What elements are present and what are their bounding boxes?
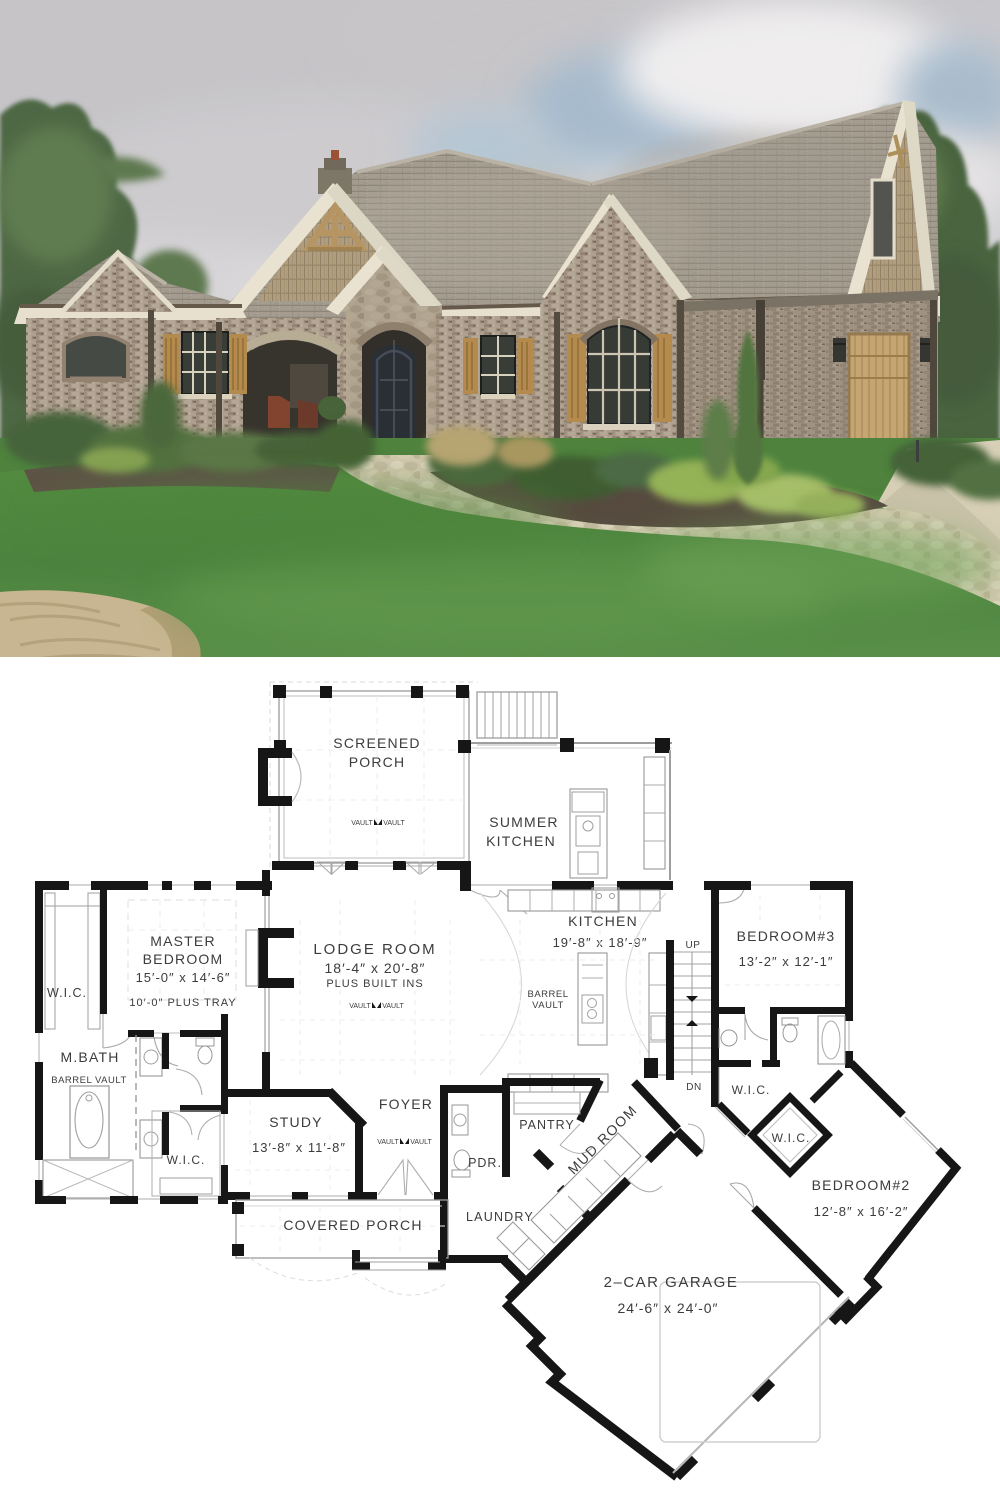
svg-text:VAULT: VAULT: [349, 1003, 371, 1010]
svg-text:13′-8″ x 11′-8″: 13′-8″ x 11′-8″: [252, 1140, 346, 1155]
svg-text:PORCH: PORCH: [349, 754, 406, 770]
svg-text:DN: DN: [686, 1082, 701, 1093]
svg-text:24′-6″ x 24′-0″: 24′-6″ x 24′-0″: [618, 1300, 719, 1316]
svg-text:VAULT: VAULT: [377, 1139, 399, 1146]
svg-text:UP: UP: [686, 940, 701, 951]
svg-text:FOYER: FOYER: [379, 1096, 433, 1112]
svg-text:BARREL VAULT: BARREL VAULT: [51, 1075, 127, 1086]
svg-text:W.I.C.: W.I.C.: [47, 986, 87, 1000]
svg-text:W.I.C.: W.I.C.: [732, 1083, 771, 1097]
svg-text:15′-0″ x 14′-6″: 15′-0″ x 14′-6″: [136, 970, 231, 985]
svg-text:VAULT: VAULT: [383, 820, 405, 827]
svg-text:2–CAR GARAGE: 2–CAR GARAGE: [604, 1274, 739, 1291]
svg-text:BEDROOM: BEDROOM: [143, 951, 224, 967]
svg-text:W.I.C.: W.I.C.: [772, 1131, 811, 1145]
svg-text:12′-8″ x 16′-2″: 12′-8″ x 16′-2″: [814, 1204, 909, 1219]
svg-text:BARREL: BARREL: [527, 989, 568, 1000]
svg-text:LAUNDRY: LAUNDRY: [466, 1210, 534, 1224]
svg-text:10′-0″ PLUS TRAY: 10′-0″ PLUS TRAY: [129, 997, 236, 1009]
svg-text:VAULT: VAULT: [351, 820, 373, 827]
svg-text:W.I.C.: W.I.C.: [167, 1153, 206, 1167]
svg-text:BEDROOM#2: BEDROOM#2: [812, 1177, 911, 1193]
svg-text:SUMMER: SUMMER: [489, 814, 558, 830]
svg-text:VAULT: VAULT: [410, 1139, 432, 1146]
svg-text:18′-4″ x 20′-8″: 18′-4″ x 20′-8″: [325, 960, 426, 976]
svg-text:13′-2″ x 12′-1″: 13′-2″ x 12′-1″: [739, 954, 834, 969]
svg-text:VAULT: VAULT: [532, 1000, 564, 1011]
svg-text:PDR.: PDR.: [468, 1156, 502, 1170]
svg-text:SCREENED: SCREENED: [333, 735, 420, 751]
svg-text:PANTRY: PANTRY: [519, 1118, 575, 1132]
svg-text:VAULT: VAULT: [382, 1003, 404, 1010]
svg-text:COVERED PORCH: COVERED PORCH: [283, 1217, 422, 1233]
svg-text:KITCHEN: KITCHEN: [568, 913, 638, 929]
svg-text:KITCHEN: KITCHEN: [486, 833, 556, 849]
svg-text:STUDY: STUDY: [269, 1114, 322, 1130]
svg-text:BEDROOM#3: BEDROOM#3: [737, 928, 836, 944]
svg-text:MASTER: MASTER: [150, 933, 216, 949]
svg-text:PLUS BUILT INS: PLUS BUILT INS: [326, 978, 423, 990]
svg-text:M.BATH: M.BATH: [60, 1049, 119, 1065]
svg-text:LODGE ROOM: LODGE ROOM: [313, 941, 436, 958]
